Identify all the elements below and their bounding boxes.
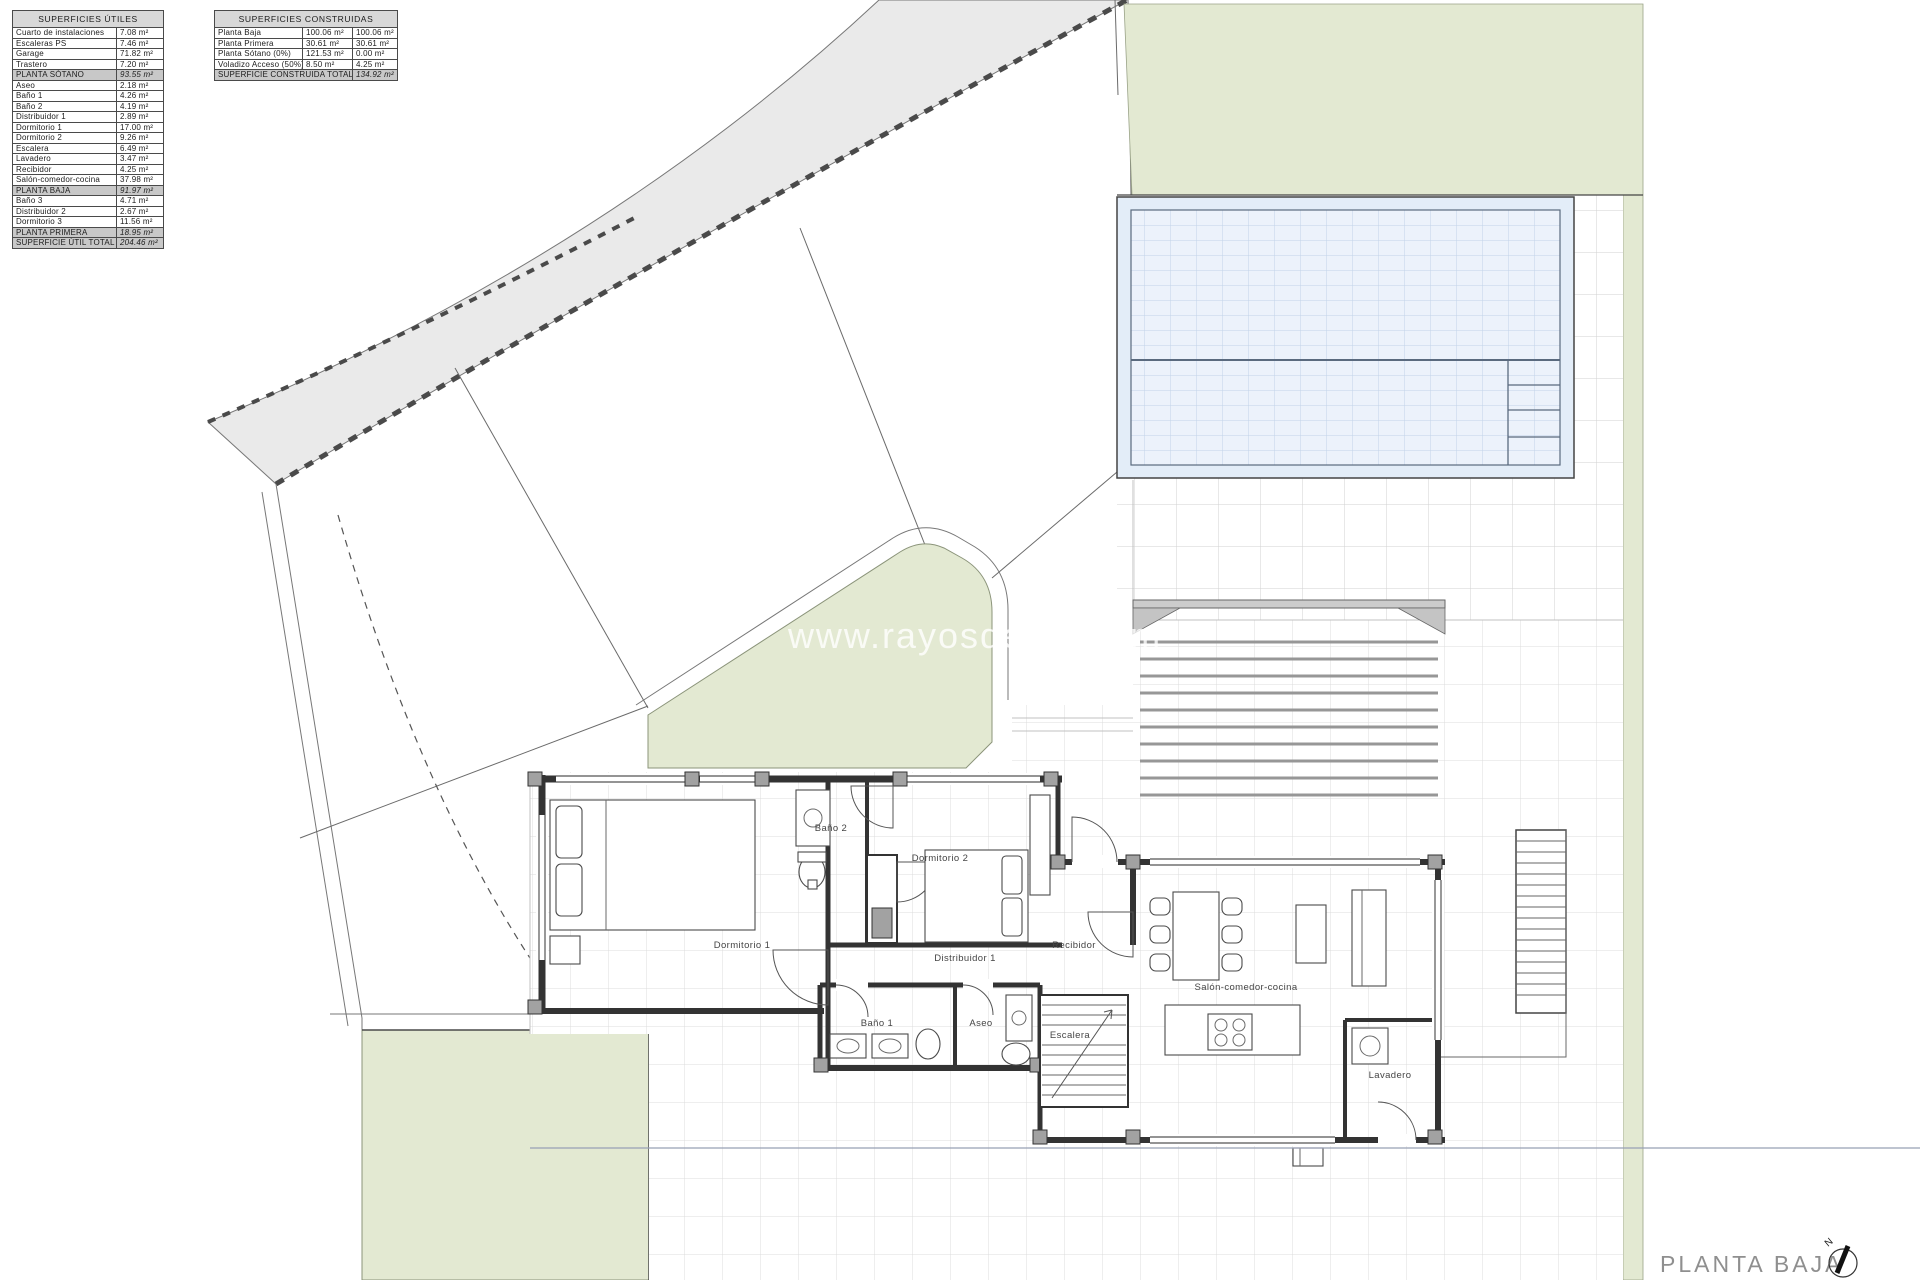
table-cell: Baño 3 [13,196,117,206]
table-cell: 4.25 m² [353,60,397,70]
table-row: Distribuidor 22.67 m² [13,207,163,218]
table-cell: 204.46 m² [117,238,163,248]
room-label-bano-1: Baño 1 [861,1018,894,1029]
table-cell: Lavadero [13,154,117,164]
table-row: Escalera6.49 m² [13,144,163,155]
table-row: PLANTA SÓTANO93.55 m² [13,70,163,81]
table-cell: 4.25 m² [117,165,163,175]
table-cell: Recibidor [13,165,117,175]
table-body: Cuarto de instalaciones7.08 m²Escaleras … [13,28,163,248]
table-cell: 4.19 m² [117,102,163,112]
table-cell: 7.08 m² [117,28,163,38]
table-cell: 9.26 m² [117,133,163,143]
table-cell: PLANTA BAJA [13,186,117,196]
table-row: Voladizo Acceso (50%)8.50 m²4.25 m² [215,60,397,71]
room-label-dormitorio-1: Dormitorio 1 [714,940,771,951]
table-cell: SUPERFICIE ÚTIL TOTAL [13,238,117,248]
table-cell: 91.97 m² [117,186,163,196]
table-row: PLANTA BAJA91.97 m² [13,186,163,197]
table-superficies-construidas: SUPERFICIES CONSTRUIDAS Planta Baja100.0… [214,10,398,81]
room-label-aseo: Aseo [969,1018,992,1029]
table-cell: Dormitorio 2 [13,133,117,143]
table-cell: 37.98 m² [117,175,163,185]
room-label-escalera: Escalera [1050,1030,1090,1041]
table-cell: 134.92 m² [353,70,397,80]
lawn-right-strip [1623,195,1643,1280]
room-label-bano-2: Baño 2 [815,823,848,834]
table-row: Baño 24.19 m² [13,102,163,113]
table-cell: Distribuidor 2 [13,207,117,217]
table-cell: 2.18 m² [117,81,163,91]
table-cell: Dormitorio 3 [13,217,117,227]
table-title: SUPERFICIES CONSTRUIDAS [215,11,397,28]
table-cell: 2.89 m² [117,112,163,122]
lawn-top [1124,4,1643,195]
table-cell: 0.00 m² [353,49,397,59]
table-superficies-utiles: SUPERFICIES ÚTILES Cuarto de instalacion… [12,10,164,249]
table-cell: 100.06 m² [303,28,353,38]
table-cell: Garage [13,49,117,59]
table-cell: Baño 2 [13,102,117,112]
table-row: Salón-comedor-cocina37.98 m² [13,175,163,186]
table-row: Planta Baja100.06 m²100.06 m² [215,28,397,39]
table-cell: 7.20 m² [117,60,163,70]
table-row: Dormitorio 117.00 m² [13,123,163,134]
table-cell: 17.00 m² [117,123,163,133]
table-row: SUPERFICIE ÚTIL TOTAL204.46 m² [13,238,163,248]
table-row: Planta Primera30.61 m²30.61 m² [215,39,397,50]
table-cell: Dormitorio 1 [13,123,117,133]
table-row: Lavadero3.47 m² [13,154,163,165]
table-row: Trastero7.20 m² [13,60,163,71]
table-cell: Salón-comedor-cocina [13,175,117,185]
table-cell: 4.71 m² [117,196,163,206]
table-cell: 8.50 m² [303,60,353,70]
table-body: Planta Baja100.06 m²100.06 m²Planta Prim… [215,28,397,80]
table-cell: Cuarto de instalaciones [13,28,117,38]
table-row: Recibidor4.25 m² [13,165,163,176]
table-cell: Planta Sótano (0%) [215,49,303,59]
table-title: SUPERFICIES ÚTILES [13,11,163,28]
table-row: Baño 34.71 m² [13,196,163,207]
table-cell: 2.67 m² [117,207,163,217]
table-cell: 7.46 m² [117,39,163,49]
table-cell: Aseo [13,81,117,91]
table-row: Dormitorio 311.56 m² [13,217,163,228]
table-row: Cuarto de instalaciones7.08 m² [13,28,163,39]
table-row: Aseo2.18 m² [13,81,163,92]
table-cell: Escaleras PS [13,39,117,49]
table-cell: 71.82 m² [117,49,163,59]
table-cell: Planta Baja [215,28,303,38]
room-label-distribuidor-1: Distribuidor 1 [934,953,996,964]
table-row: Distribuidor 12.89 m² [13,112,163,123]
table-cell: Baño 1 [13,91,117,101]
table-cell: 93.55 m² [117,70,163,80]
table-row: Planta Sótano (0%)121.53 m²0.00 m² [215,49,397,60]
table-cell: PLANTA PRIMERA [13,228,117,238]
table-row: Dormitorio 29.26 m² [13,133,163,144]
table-cell: Voladizo Acceso (50%) [215,60,303,70]
table-cell: 4.26 m² [117,91,163,101]
room-label-dormitorio-2: Dormitorio 2 [912,853,969,864]
table-cell: 100.06 m² [353,28,397,38]
room-label-lavadero: Lavadero [1369,1070,1412,1081]
swimming-pool [1117,195,1643,478]
floor-plan-sheet: Dormitorio 1 Baño 2 Dormitorio 2 Distrib… [0,0,1920,1280]
table-cell: 121.53 m² [303,49,353,59]
table-cell: 30.61 m² [353,39,397,49]
table-row: Escaleras PS7.46 m² [13,39,163,50]
table-cell: Escalera [13,144,117,154]
table-row: Garage71.82 m² [13,49,163,60]
drawing-caption: PLANTA BAJA [1660,1251,1843,1277]
table-row: Baño 14.26 m² [13,91,163,102]
table-cell: SUPERFICIE CONSTRUIDA TOTAL [215,70,353,80]
table-cell: Planta Primera [215,39,303,49]
table-cell: 30.61 m² [303,39,353,49]
table-cell: 11.56 m² [117,217,163,227]
table-cell: 6.49 m² [117,144,163,154]
lawn-bottom-left [362,1030,649,1280]
table-cell: Distribuidor 1 [13,112,117,122]
table-cell: PLANTA SÓTANO [13,70,117,80]
room-label-salon: Salón-comedor-cocina [1194,982,1297,993]
table-row: SUPERFICIE CONSTRUIDA TOTAL134.92 m² [215,70,397,80]
watermark: www.rayosdesol.com [787,615,1162,656]
table-cell: Trastero [13,60,117,70]
room-label-recibidor: Recibidor [1052,940,1096,951]
table-cell: 3.47 m² [117,154,163,164]
table-row: PLANTA PRIMERA18.95 m² [13,228,163,239]
interior-stair [1040,995,1128,1107]
table-cell: 18.95 m² [117,228,163,238]
